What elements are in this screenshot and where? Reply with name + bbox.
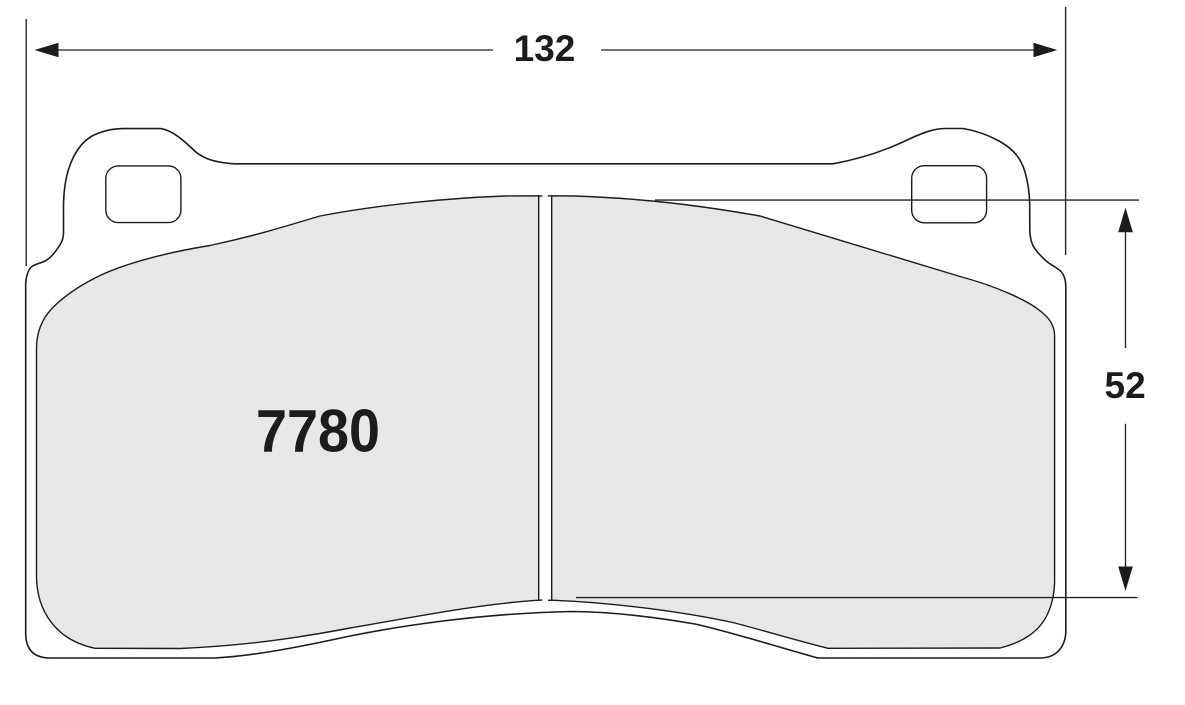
- svg-text:132: 132: [514, 28, 576, 69]
- svg-text:7780: 7780: [256, 398, 380, 465]
- svg-text:52: 52: [1105, 365, 1146, 406]
